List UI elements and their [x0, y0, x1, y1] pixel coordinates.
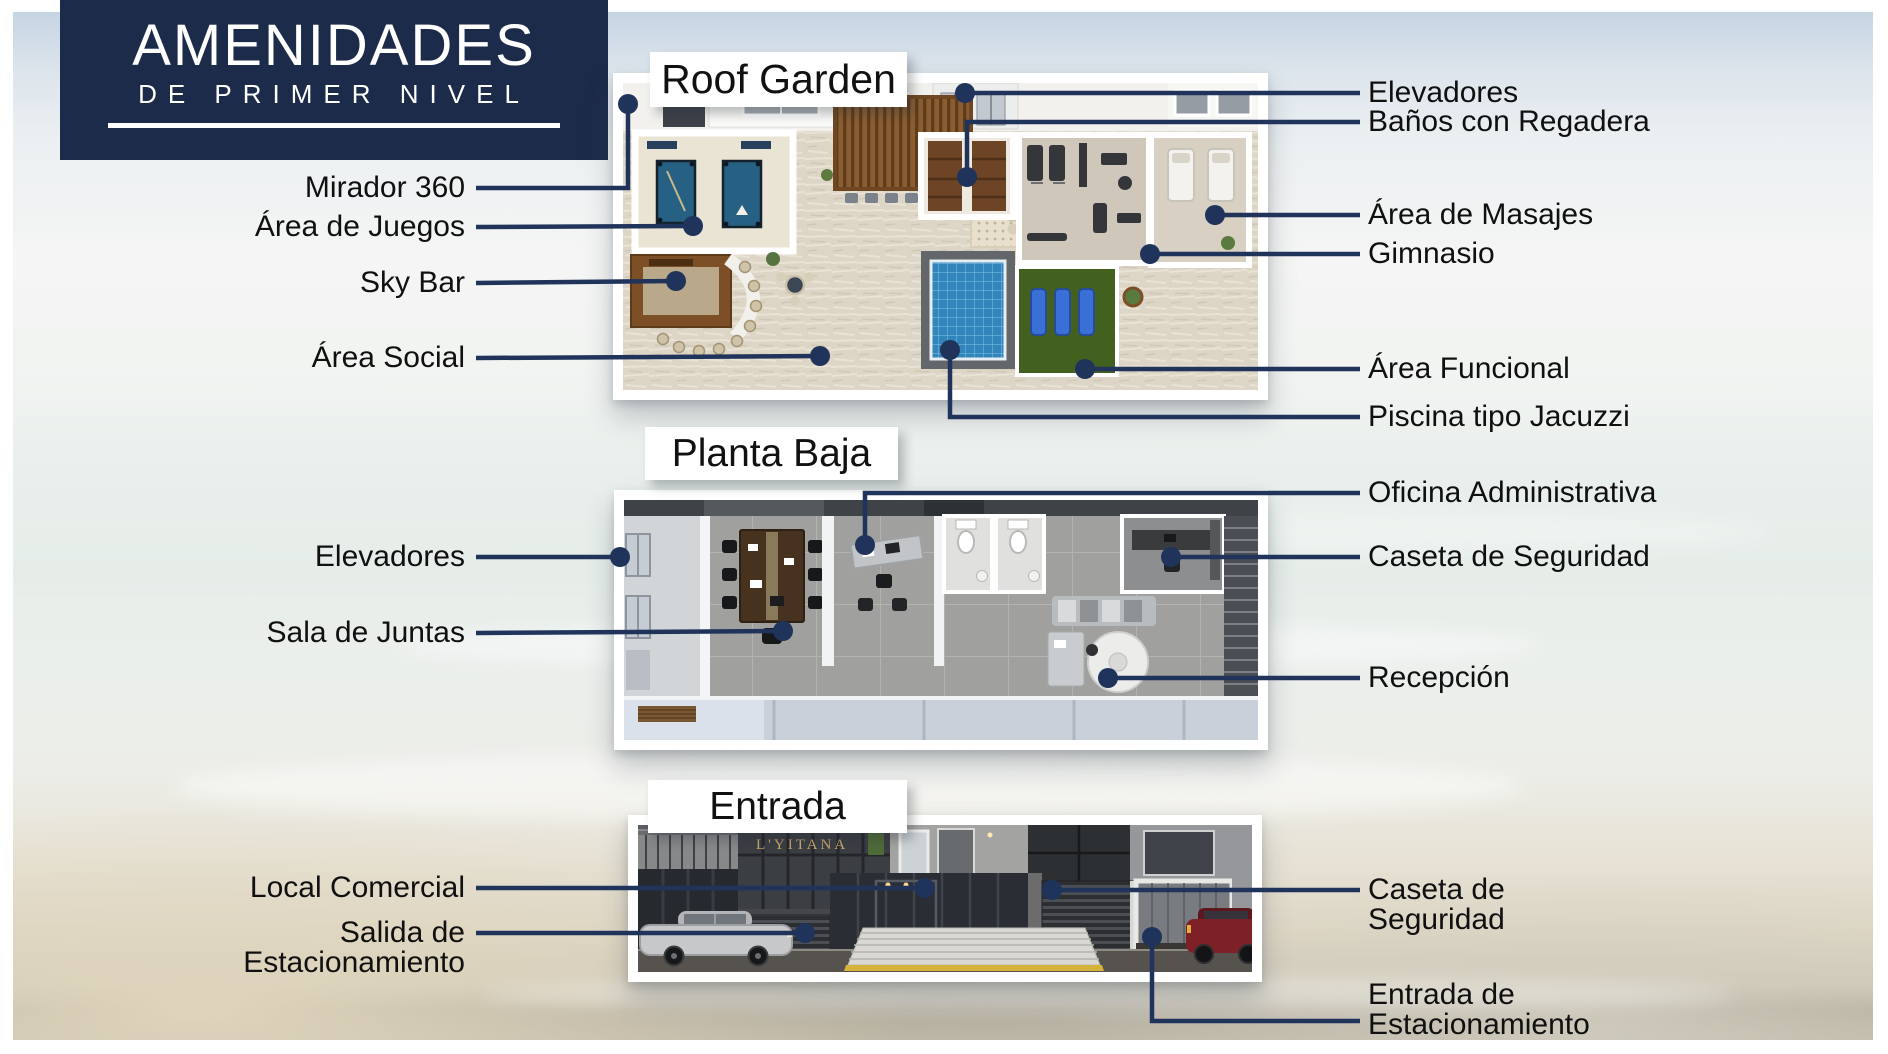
amenities-infographic: AMENIDADES DE PRIMER NIVEL: [0, 0, 1888, 1054]
callout-line: Seguridad: [1368, 905, 1505, 935]
callout-caseta-de-seguridad-entrada: Caseta de Seguridad: [1368, 875, 1505, 935]
callout-area-funcional: Área Funcional: [1368, 354, 1570, 384]
callout-recepcion: Recepción: [1368, 663, 1510, 693]
callout-elevadores-rg: Elevadores: [1368, 78, 1518, 108]
leader-banos-con-regadera: [957, 122, 1360, 187]
callout-line: Entrada de: [1368, 980, 1590, 1010]
leader-piscina-tipo-jacuzzi: [940, 340, 1360, 417]
leader-recepcion: [1098, 668, 1360, 688]
leader-elevadores-rg: [955, 83, 1360, 103]
callout-mirador-360: Mirador 360: [100, 173, 465, 203]
leader-sky-bar: [476, 271, 686, 291]
leader-sala-de-juntas: [476, 621, 793, 641]
callout-line: Salida de: [100, 918, 465, 948]
leader-caseta-de-seguridad-pb: [1161, 547, 1360, 567]
leader-area-de-masajes: [1205, 205, 1360, 225]
callout-area-de-juegos: Área de Juegos: [100, 212, 465, 242]
callout-gimnasio: Gimnasio: [1368, 239, 1495, 269]
callout-line: Estacionamiento: [1368, 1010, 1590, 1040]
leader-area-social: [476, 346, 830, 366]
leader-local-comercial: [476, 878, 935, 898]
callout-sala-de-juntas: Sala de Juntas: [100, 618, 465, 648]
leader-caseta-de-seguridad-entrada: [1042, 880, 1360, 900]
leader-gimnasio: [1140, 244, 1360, 264]
callout-oficina-administrativa: Oficina Administrativa: [1368, 478, 1656, 508]
callout-elevadores-pb: Elevadores: [100, 542, 465, 572]
leader-mirador-360: [476, 94, 638, 188]
callout-sky-bar: Sky Bar: [100, 268, 465, 298]
callout-entrada-de-estacionamiento: Entrada de Estacionamiento: [1368, 980, 1590, 1040]
callout-line: Caseta de: [1368, 875, 1505, 905]
callout-salida-de-estacionamiento: Salida de Estacionamiento: [100, 918, 465, 978]
callout-banos-con-regadera: Baños con Regadera: [1368, 107, 1650, 137]
leader-oficina-administrativa: [855, 493, 1360, 555]
callout-area-social: Área Social: [100, 343, 465, 373]
leader-elevadores-pb: [476, 547, 630, 567]
leader-area-de-juegos: [476, 216, 703, 236]
callout-piscina-tipo-jacuzzi: Piscina tipo Jacuzzi: [1368, 402, 1630, 432]
leader-salida-de-estacionamiento: [476, 923, 815, 943]
callout-local-comercial: Local Comercial: [100, 873, 465, 903]
callout-caseta-de-seguridad-pb: Caseta de Seguridad: [1368, 542, 1650, 572]
callout-line: Estacionamiento: [100, 948, 465, 978]
callout-area-de-masajes: Área de Masajes: [1368, 200, 1593, 230]
leader-entrada-de-estacionamiento: [1142, 927, 1360, 1021]
leader-area-funcional: [1075, 359, 1360, 379]
